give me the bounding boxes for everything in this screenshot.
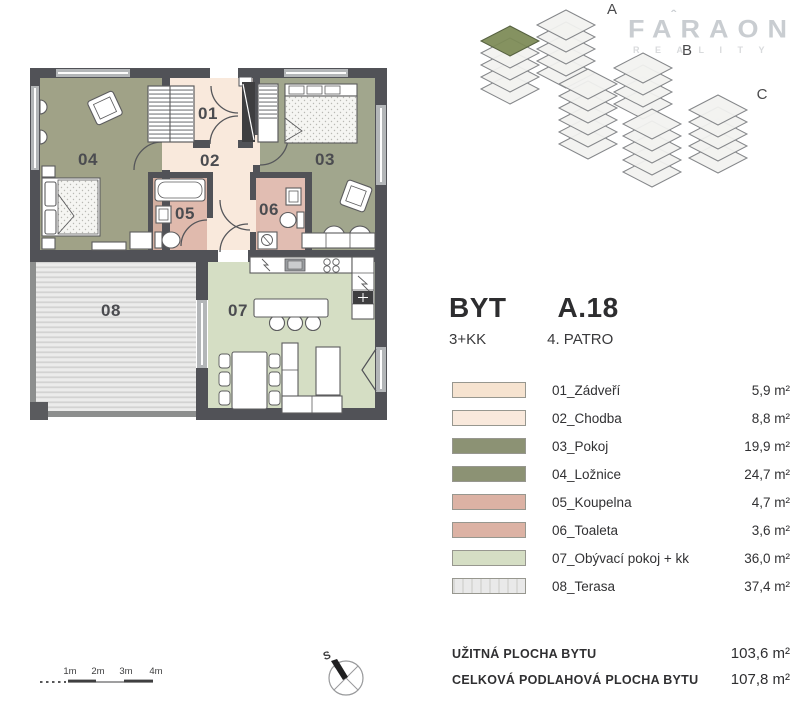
compass: S xyxy=(322,649,363,695)
furniture-zadveri xyxy=(148,86,194,142)
legend-row: 04_Ložnice 24,7 m² xyxy=(452,463,790,485)
room-fill-terasa xyxy=(36,262,196,415)
unit-disposition: 3+KK xyxy=(449,331,486,348)
scale-label-4m: 4m xyxy=(149,666,162,677)
legend-swatch-03 xyxy=(452,438,526,454)
room-label-04: 04 xyxy=(78,150,98,169)
terrace-wall-bottom xyxy=(30,411,196,417)
legend-area-08: 37,4 m² xyxy=(744,579,790,594)
legend-row: 06_Toaleta 3,6 m² xyxy=(452,519,790,541)
total-usable-value: 103,6 m² xyxy=(731,645,790,662)
area-totals: UŽITNÁ PLOCHA BYTU 103,6 m² CELKOVÁ PODL… xyxy=(452,645,790,697)
room-label-07: 07 xyxy=(228,301,248,320)
legend-label-03: 03_Pokoj xyxy=(552,439,608,454)
entrance-opening xyxy=(210,68,238,78)
room-label-02: 02 xyxy=(200,151,220,170)
total-row-usable: UŽITNÁ PLOCHA BYTU 103,6 m² xyxy=(452,645,790,662)
brand-logo: FARAON ˆ REALITY xyxy=(628,16,798,55)
drawing-canvas: 01 02 03 04 05 06 07 08 A B C 1m 2m xyxy=(0,0,809,719)
terrace-post xyxy=(30,402,48,420)
scale-label-3m: 3m xyxy=(119,666,132,677)
legend-area-06: 3,6 m² xyxy=(752,523,790,538)
legend-swatch-07 xyxy=(452,550,526,566)
legend-label-07: 07_Obývací pokoj + kk xyxy=(552,551,689,566)
legend-row: 07_Obývací pokoj + kk 36,0 m² xyxy=(452,547,790,569)
legend-row: 01_Zádveří 5,9 m² xyxy=(452,379,790,401)
legend-label-04: 04_Ložnice xyxy=(552,467,621,482)
scale-bar: 1m 2m 3m 4m xyxy=(40,666,163,683)
legend-swatch-02 xyxy=(452,410,526,426)
legend-swatch-01 xyxy=(452,382,526,398)
section-label-c: C xyxy=(757,86,768,103)
legend-row: 05_Koupelna 4,7 m² xyxy=(452,491,790,513)
legend-label-08: 08_Terasa xyxy=(552,579,615,594)
room-legend: 01_Zádveří 5,9 m² 02_Chodba 8,8 m² 03_Po… xyxy=(452,379,790,603)
total-usable-label: UŽITNÁ PLOCHA BYTU xyxy=(452,647,597,661)
legend-area-07: 36,0 m² xyxy=(744,551,790,566)
room-label-05: 05 xyxy=(175,204,195,223)
brand-name: FARAON ˆ xyxy=(628,17,798,42)
legend-area-02: 8,8 m² xyxy=(752,411,790,426)
legend-swatch-06 xyxy=(452,522,526,538)
legend-label-06: 06_Toaleta xyxy=(552,523,618,538)
legend-label-02: 02_Chodba xyxy=(552,411,622,426)
terrace-wall-left xyxy=(30,262,36,417)
legend-area-01: 5,9 m² xyxy=(752,383,790,398)
unit-code: A.18 xyxy=(558,292,619,324)
compass-north-label: S xyxy=(322,649,333,663)
legend-label-05: 05_Koupelna xyxy=(552,495,632,510)
room-label-01: 01 xyxy=(198,104,218,123)
unit-type-label: BYT xyxy=(449,292,507,324)
floor-plan: 01 02 03 04 05 06 07 08 xyxy=(30,68,387,420)
section-label-a: A xyxy=(607,1,617,18)
legend-label-01: 01_Zádveří xyxy=(552,383,620,398)
legend-area-04: 24,7 m² xyxy=(744,467,790,482)
brand-tagline: REALITY xyxy=(628,45,798,55)
total-row-overall: CELKOVÁ PODLAHOVÁ PLOCHA BYTU 107,8 m² xyxy=(452,671,790,688)
floorplan-page: 01 02 03 04 05 06 07 08 A B C 1m 2m xyxy=(0,0,809,719)
unit-floor: 4. PATRO xyxy=(547,331,613,348)
legend-row: 02_Chodba 8,8 m² xyxy=(452,407,790,429)
legend-row: 08_Terasa 37,4 m² xyxy=(452,575,790,597)
legend-area-03: 19,9 m² xyxy=(744,439,790,454)
brand-text: FARAON xyxy=(628,15,796,43)
brand-caret-icon: ˆ xyxy=(671,9,685,23)
legend-swatch-05 xyxy=(452,494,526,510)
room-label-06: 06 xyxy=(259,200,279,219)
total-overall-value: 107,8 m² xyxy=(731,671,790,688)
room-label-03: 03 xyxy=(315,150,335,169)
unit-header: BYT A.18 3+KK 4. PATRO xyxy=(449,292,789,348)
room-label-08: 08 xyxy=(101,301,121,320)
legend-area-05: 4,7 m² xyxy=(752,495,790,510)
legend-row: 03_Pokoj 19,9 m² xyxy=(452,435,790,457)
scale-label-1m: 1m xyxy=(63,666,76,677)
legend-swatch-08 xyxy=(452,578,526,594)
legend-swatch-04 xyxy=(452,466,526,482)
total-overall-label: CELKOVÁ PODLAHOVÁ PLOCHA BYTU xyxy=(452,673,698,687)
scale-label-2m: 2m xyxy=(91,666,104,677)
